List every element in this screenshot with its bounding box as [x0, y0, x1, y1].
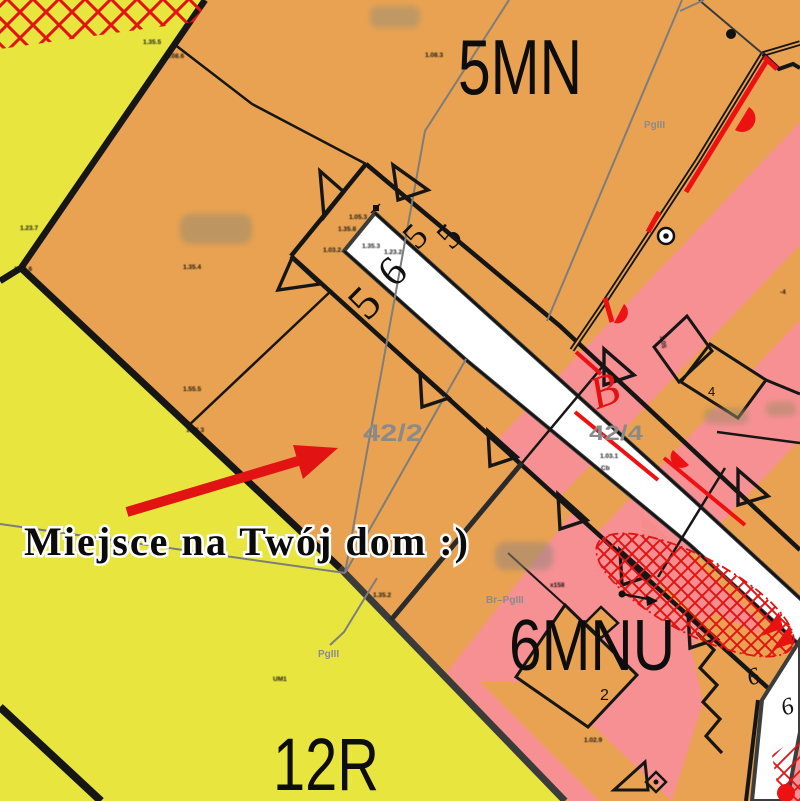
- svg-text:1.08.6: 1.08.6: [166, 53, 184, 60]
- svg-text:4: 4: [708, 384, 715, 399]
- svg-text:1.33.6: 1.33.6: [14, 266, 32, 273]
- svg-text:1.35.3: 1.35.3: [362, 243, 380, 250]
- svg-text:5MN: 5MN: [458, 23, 582, 111]
- svg-text:1.02.9: 1.02.9: [584, 737, 602, 744]
- svg-text:UM1: UM1: [273, 676, 287, 683]
- svg-text:-4: -4: [780, 289, 786, 296]
- svg-text:Miejsce na Twój dom :): Miejsce na Twój dom :): [24, 519, 468, 564]
- svg-text:42/2: 42/2: [363, 420, 423, 447]
- svg-text:PgIII: PgIII: [318, 649, 339, 660]
- svg-text:PgIII: PgIII: [644, 120, 665, 131]
- svg-text:Cb: Cb: [601, 465, 610, 472]
- svg-text:1.23.7: 1.23.7: [20, 225, 38, 232]
- svg-text:1.05.3: 1.05.3: [349, 214, 367, 221]
- svg-text:1.43.3: 1.43.3: [186, 427, 204, 434]
- svg-text:x158: x158: [550, 582, 565, 589]
- svg-text:42/4: 42/4: [589, 422, 643, 445]
- svg-text:1.03.1: 1.03.1: [600, 453, 618, 460]
- svg-text:1.35.2: 1.35.2: [373, 592, 391, 599]
- svg-text:2: 2: [600, 687, 609, 704]
- svg-text:1.35.4: 1.35.4: [183, 264, 201, 271]
- svg-text:1.55.5: 1.55.5: [183, 386, 201, 393]
- svg-text:6MNU: 6MNU: [509, 606, 675, 686]
- svg-text:1.08.3: 1.08.3: [425, 52, 443, 59]
- svg-text:Br–PgIII: Br–PgIII: [486, 595, 524, 606]
- svg-text:1.23.2: 1.23.2: [384, 249, 402, 256]
- svg-text:12R: 12R: [273, 723, 379, 801]
- svg-text:1.35.8: 1.35.8: [338, 226, 356, 233]
- svg-text:1.35.5: 1.35.5: [143, 39, 161, 46]
- svg-text:1.03.2: 1.03.2: [323, 247, 341, 254]
